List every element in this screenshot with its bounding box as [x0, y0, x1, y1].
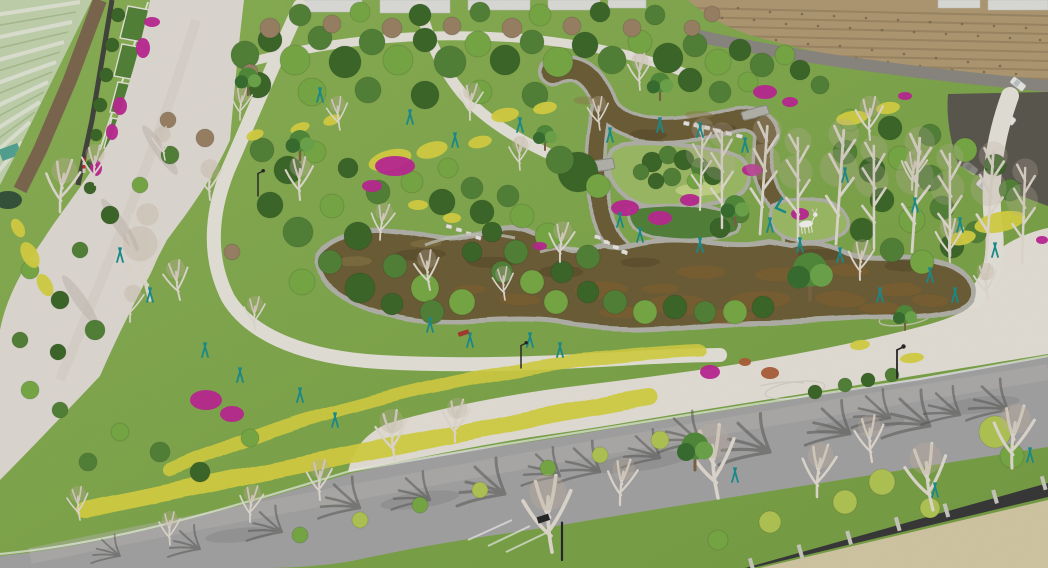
aerial-park-photo [0, 0, 1048, 568]
scene-svg [0, 0, 1048, 568]
grain-overlay-light [0, 0, 1048, 568]
